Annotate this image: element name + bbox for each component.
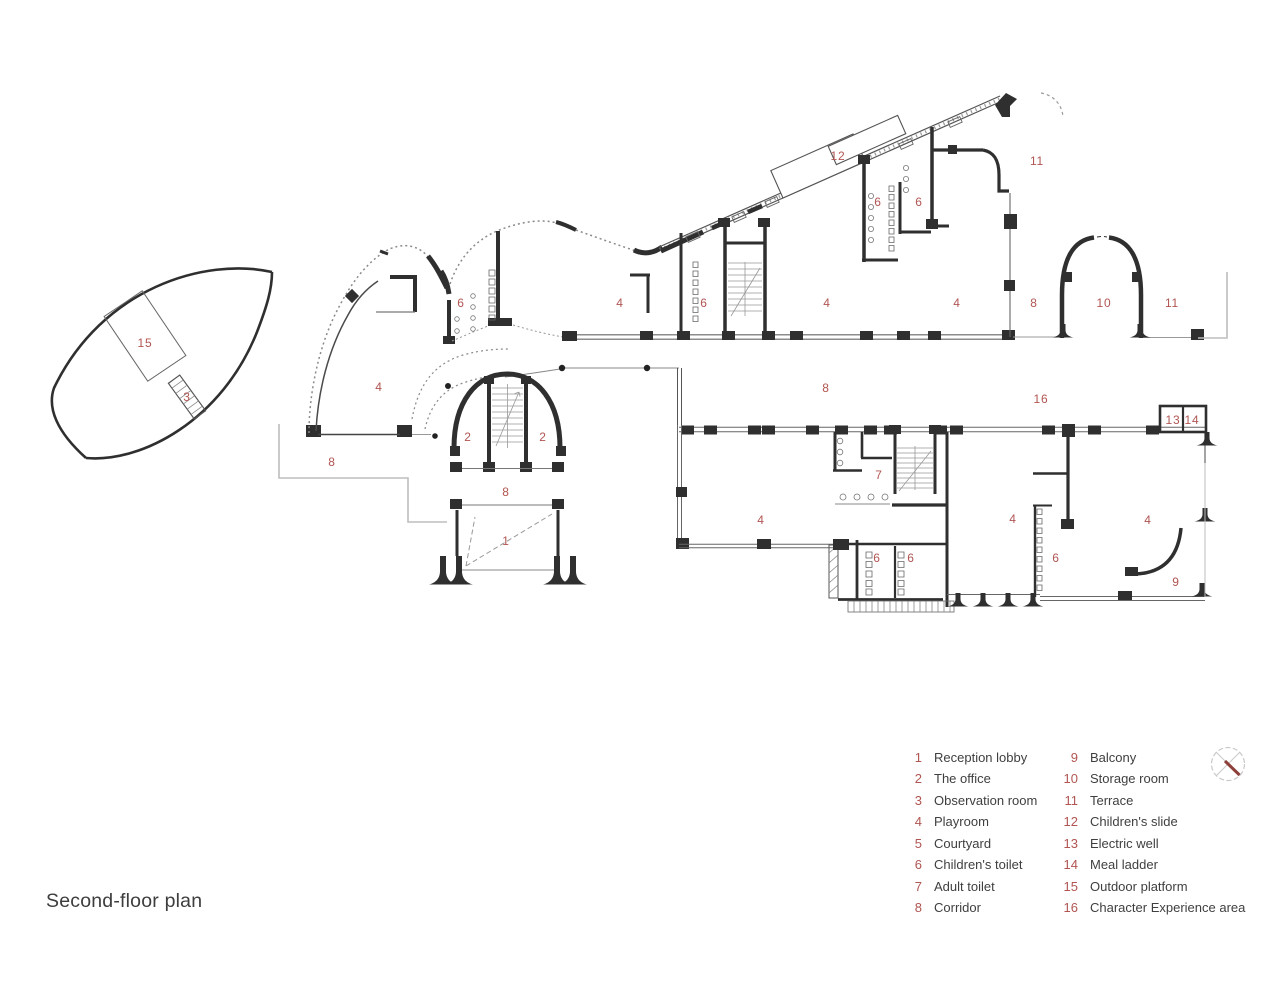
room-label-15: 15 [138,336,153,350]
room-label-2: 2 [464,430,471,444]
legend-label: Courtyard [934,836,991,851]
legend-number: 14 [1046,854,1078,875]
legend-label: Playroom [934,814,989,829]
legend-label: Reception lobby [934,750,1027,765]
room-label-10: 10 [1097,296,1112,310]
legend-label: Terrace [1090,793,1133,808]
legend-item-3: 3Observation room [890,790,1037,811]
legend-item-15: 15Outdoor platform [1046,876,1245,897]
legend-label: Balcony [1090,750,1136,765]
room-label-12: 12 [831,149,846,163]
stair-upper-wing [718,218,770,337]
upper-wing [562,93,1227,341]
legend-number: 16 [1046,897,1078,918]
room-label-4: 4 [953,296,960,310]
drawing-sheet: 1538462281461266411481011816131474446669… [0,0,1280,1004]
legend-item-16: 16Character Experience area [1046,897,1245,918]
entrance-block [429,374,587,585]
room-label-8: 8 [1030,296,1037,310]
lower-toilets-west [829,539,954,612]
room-label-7: 7 [875,468,882,482]
room-label-2: 2 [539,430,546,444]
room-label-6: 6 [915,195,922,209]
page-title: Second-floor plan [46,890,202,913]
room-label-11: 11 [1030,154,1044,168]
room-label-16: 16 [1034,392,1049,406]
room-label-13: 13 [1166,413,1181,427]
room-label-4: 4 [757,513,764,527]
outdoor-platform-leaf [52,268,272,458]
legend-label: Storage room [1090,771,1169,786]
legend-item-14: 14Meal ladder [1046,854,1245,875]
legend-label: Outdoor platform [1090,879,1188,894]
lower-toilet-east [1033,432,1074,597]
room-label-6: 6 [457,296,464,310]
room-label-8: 8 [822,381,829,395]
legend-number: 2 [890,768,922,789]
room-label-6: 6 [873,551,880,565]
legend-item-2: 2The office [890,768,1037,789]
legend-number: 3 [890,790,922,811]
legend-label: Children's toilet [934,857,1022,872]
legend-label: Meal ladder [1090,857,1158,872]
legend-label: Children's slide [1090,814,1178,829]
room-label-6: 6 [874,195,881,209]
legend-label: Electric well [1090,836,1159,851]
room-label-14: 14 [1185,413,1200,427]
legend-number: 11 [1046,790,1078,811]
room-label-4: 4 [823,296,830,310]
room-label-4: 4 [1009,512,1016,526]
upper-right-rooms [932,93,1227,340]
room-label-6: 6 [907,551,914,565]
legend-column-1: 1Reception lobby2The office3Observation … [890,747,1037,919]
room-label-11: 11 [1165,296,1179,310]
legend-item-4: 4Playroom [890,811,1037,832]
room-label-4: 4 [375,380,382,394]
lower-wing-columns [681,424,1159,437]
legend-label: Corridor [934,900,981,915]
north-compass-icon [1204,740,1254,790]
legend-number: 15 [1046,876,1078,897]
legend-number: 8 [890,897,922,918]
legend-item-12: 12Children's slide [1046,811,1245,832]
legend-number: 12 [1046,811,1078,832]
playroom-wing-west [306,221,662,439]
legend-number: 13 [1046,833,1078,854]
room-label-9: 9 [1172,575,1179,589]
room-label-3: 3 [183,390,190,404]
legend-item-5: 5Courtyard [890,833,1037,854]
legend-number: 4 [890,811,922,832]
legend-item-11: 11Terrace [1046,790,1245,811]
legend-number: 7 [890,876,922,897]
stair-lower-wing [889,425,948,607]
legend-item-6: 6Children's toilet [890,854,1037,875]
legend-label: Character Experience area [1090,900,1245,915]
legend-item-1: 1Reception lobby [890,747,1037,768]
room-label-4: 4 [616,296,623,310]
legend-item-13: 13Electric well [1046,833,1245,854]
legend-number: 1 [890,747,922,768]
legend-item-8: 8Corridor [890,897,1037,918]
room-label-6: 6 [700,296,707,310]
toilet-room-west [441,231,512,344]
legend-item-7: 7Adult toilet [890,876,1037,897]
room-label-1: 1 [502,534,509,548]
room-label-4: 4 [1144,513,1151,527]
legend-number: 9 [1046,747,1078,768]
storage-arch [1053,237,1151,339]
legend-label: Adult toilet [934,879,995,894]
stair-central [492,384,523,448]
legend-label: The office [934,771,991,786]
room-label-8: 8 [328,455,335,469]
legend-number: 10 [1046,768,1078,789]
lower-wing [676,368,1218,612]
adult-toilet [833,432,892,504]
room-label-8: 8 [502,485,509,499]
legend-label: Observation room [934,793,1037,808]
legend-number: 5 [890,833,922,854]
link-corridor [279,424,447,522]
legend-number: 6 [890,854,922,875]
room-label-6: 6 [1052,551,1059,565]
arched-piers [947,593,1044,607]
